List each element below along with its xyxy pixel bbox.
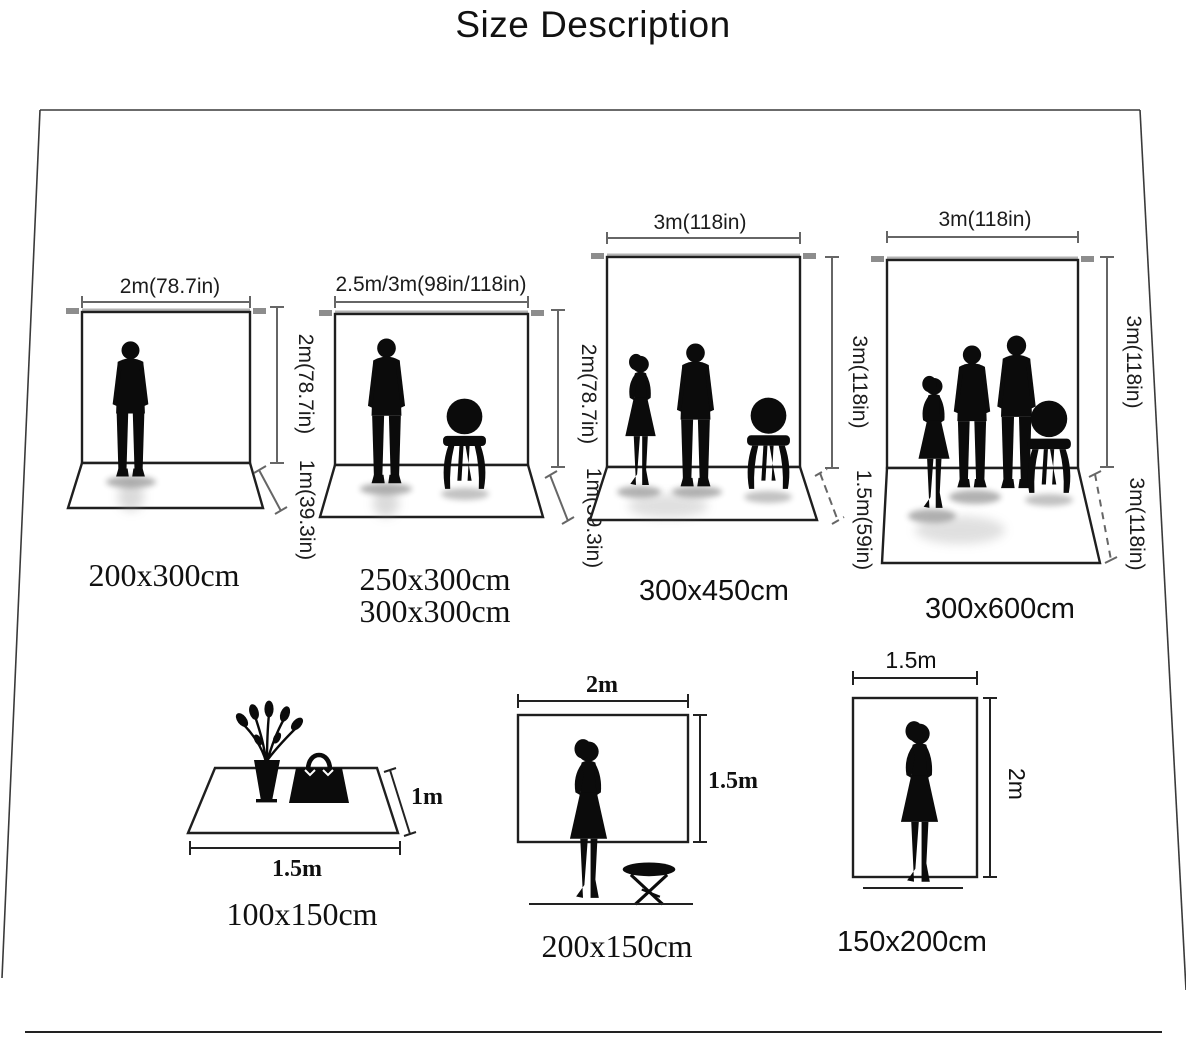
- height-dimension-label: 2m(78.7in): [577, 344, 600, 444]
- floor-depth-label: 1.5m(59in): [852, 470, 875, 570]
- size-caption-2: 300x300cm: [359, 593, 510, 629]
- width-dimension-label: 3m(118in): [654, 211, 747, 234]
- height-dimension-label: 2m: [1004, 768, 1030, 800]
- height-dimension-label: 3m(118in): [1122, 316, 1145, 409]
- height-dimension: 2m: [983, 698, 1030, 877]
- backdrop-sheet: [82, 312, 250, 463]
- backdrop-diagram-300x450: 3m(118in) 3m(118in) 1.5m(59in): [590, 211, 875, 607]
- width-dimension-label: 2.5m/3m(98in/118in): [335, 273, 526, 296]
- height-dimension: 2m(78.7in): [551, 310, 600, 467]
- floor-depth-dimension: 1.5m(59in): [815, 469, 875, 570]
- height-dimension-label: 2m(78.7in): [294, 334, 317, 434]
- backdrop-sheet: [335, 314, 528, 465]
- backdrop-diagram-200x300: 2m(78.7in) 2m(78.7in) 1m(39.3in) 200x300…: [66, 275, 318, 593]
- width-dimension: 2m: [518, 672, 688, 708]
- height-dimension: 3m(118in): [1100, 257, 1145, 467]
- height-dimension: 2m(78.7in): [270, 307, 317, 463]
- height-dimension-label: 1m: [411, 784, 443, 810]
- floor-depth-dimension: 1m(39.3in): [254, 460, 318, 560]
- width-dimension: 3m(118in): [607, 211, 800, 244]
- stool-silhouette: [623, 862, 676, 904]
- width-dimension: 2.5m/3m(98in/118in): [335, 273, 528, 308]
- size-caption: 200x150cm: [541, 928, 692, 964]
- backdrop-floor: [320, 465, 543, 517]
- width-dimension-label: 1.5m: [272, 856, 322, 882]
- size-caption: 300x600cm: [925, 593, 1075, 625]
- size-description-infographic: Size Description: [0, 0, 1186, 1037]
- backdrop-diagram-250-300x300: 2.5m/3m(98in/118in) 2m(78.7in) 1m(39.3in…: [319, 273, 605, 629]
- width-dimension-label: 1.5m: [885, 647, 936, 673]
- panel-diagram-200x150: 2m 1.5m 200x150cm: [518, 672, 758, 964]
- panel-diagram-150x200: 1.5m 2m 150x200cm: [837, 647, 1030, 958]
- height-dimension-label: 3m(118in): [848, 336, 871, 429]
- width-dimension-label: 2m: [586, 672, 618, 698]
- width-dimension: 1.5m: [190, 841, 400, 882]
- width-dimension: 3m(118in): [887, 208, 1078, 243]
- backdrop-diagram-300x600: 3m(118in) 3m(118in) 3m(118i: [871, 208, 1148, 625]
- handbag-silhouette: [289, 755, 349, 803]
- floor-depth-label: 3m(118in): [1125, 478, 1148, 571]
- floor-depth-label: 1m(39.3in): [295, 460, 318, 560]
- height-dimension-label: 1.5m: [708, 768, 758, 794]
- size-caption: 300x450cm: [639, 575, 789, 607]
- width-dimension-label: 2m(78.7in): [120, 275, 220, 298]
- height-dimension: 3m(118in): [825, 257, 871, 468]
- height-dimension: 1.5m: [693, 715, 758, 842]
- backdrop-floor: [68, 463, 263, 508]
- width-dimension: 2m(78.7in): [82, 275, 250, 308]
- size-caption: 150x200cm: [837, 926, 987, 958]
- width-dimension-label: 3m(118in): [939, 208, 1032, 231]
- width-dimension: 1.5m: [853, 647, 977, 685]
- rug-diagram-100x150: 1m 1.5m 100x150cm: [188, 701, 443, 932]
- diagram-canvas: 2m(78.7in) 2m(78.7in) 1m(39.3in) 200x300…: [0, 0, 1186, 1037]
- size-caption: 250x300cm: [359, 561, 510, 597]
- size-caption: 100x150cm: [226, 896, 377, 932]
- size-caption: 200x300cm: [88, 557, 239, 593]
